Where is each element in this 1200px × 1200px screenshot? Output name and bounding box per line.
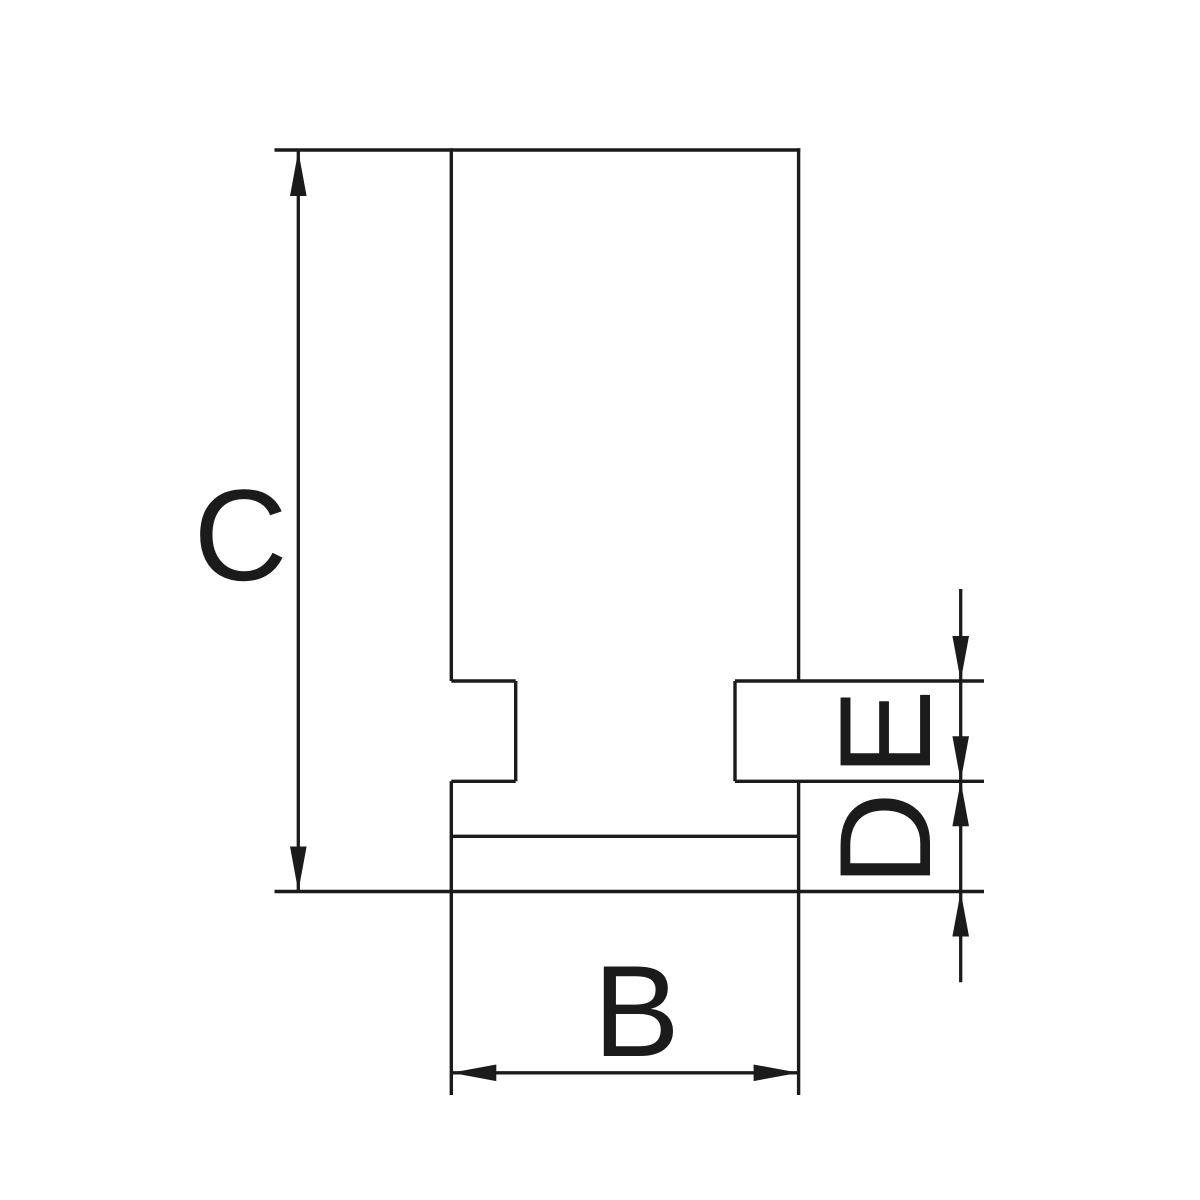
svg-text:B: B <box>593 938 680 1084</box>
svg-text:C: C <box>194 462 288 608</box>
svg-text:D: D <box>812 792 958 886</box>
svg-text:E: E <box>812 689 958 776</box>
